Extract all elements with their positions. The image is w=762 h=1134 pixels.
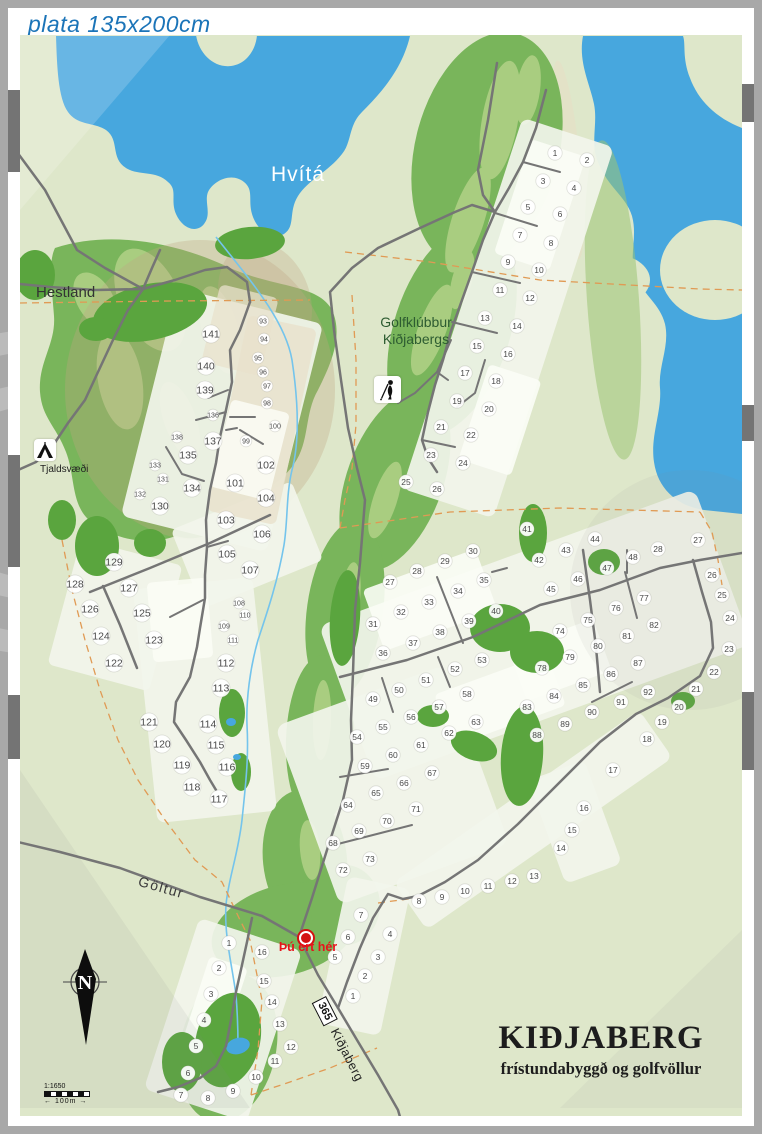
svg-text:20: 20	[484, 404, 494, 414]
svg-text:37: 37	[408, 638, 418, 648]
svg-text:136: 136	[207, 412, 219, 419]
plot-marker-1: 1	[222, 936, 236, 950]
svg-text:126: 126	[81, 604, 99, 616]
svg-text:16: 16	[579, 803, 589, 813]
plot-marker-4: 4	[197, 1013, 211, 1027]
plot-marker-8: 8	[544, 236, 558, 250]
svg-text:131: 131	[157, 476, 169, 483]
svg-text:78: 78	[537, 663, 547, 673]
plot-marker-11: 11	[268, 1054, 282, 1068]
svg-text:53: 53	[477, 655, 487, 665]
plot-marker-1: 1	[346, 989, 360, 1003]
plot-marker-1: 1	[548, 146, 562, 160]
plot-marker-134: 134	[183, 479, 201, 497]
svg-text:64: 64	[343, 800, 353, 810]
plot-marker-78: 78	[535, 661, 549, 675]
svg-text:112: 112	[218, 658, 235, 670]
scale-distance-value: 100m	[55, 1098, 77, 1105]
plot-marker-11: 11	[493, 283, 507, 297]
svg-text:82: 82	[649, 620, 659, 630]
svg-text:11: 11	[271, 1056, 280, 1066]
svg-text:1: 1	[227, 938, 232, 948]
plot-marker-52: 52	[448, 662, 462, 676]
svg-text:99: 99	[242, 438, 250, 445]
svg-text:76: 76	[611, 603, 621, 613]
map-canvas: 1234567891011121314151617181920212223242…	[20, 35, 742, 1116]
plot-marker-72: 72	[336, 863, 350, 877]
plot-marker-21: 21	[689, 682, 703, 696]
svg-text:80: 80	[593, 641, 603, 651]
svg-text:133: 133	[149, 462, 161, 469]
plot-marker-27: 27	[383, 575, 397, 589]
svg-text:28: 28	[412, 566, 422, 576]
plot-marker-17: 17	[606, 763, 620, 777]
svg-text:88: 88	[532, 730, 542, 740]
svg-text:124: 124	[92, 631, 110, 643]
svg-text:74: 74	[555, 626, 565, 636]
plot-marker-39: 39	[462, 614, 476, 628]
svg-text:123: 123	[145, 635, 163, 647]
svg-text:102: 102	[257, 460, 275, 472]
plot-marker-89: 89	[558, 717, 572, 731]
plot-marker-122: 122	[105, 654, 123, 672]
golf-club-label-line1: Golfklúbbur	[348, 314, 484, 331]
river-label: Hvítá	[271, 163, 325, 187]
svg-text:23: 23	[426, 450, 436, 460]
svg-text:4: 4	[388, 929, 393, 939]
svg-text:66: 66	[399, 778, 409, 788]
svg-text:10: 10	[460, 886, 470, 896]
plot-marker-112: 112	[217, 654, 235, 672]
plot-marker-6: 6	[553, 207, 567, 221]
svg-text:49: 49	[368, 694, 378, 704]
svg-text:7: 7	[518, 230, 523, 240]
golf-club-label-line2: Kiðjabergs	[348, 331, 484, 348]
edge-tab-left-middle	[8, 455, 20, 567]
plot-marker-11: 11	[481, 879, 495, 893]
plot-marker-24: 24	[723, 611, 737, 625]
svg-text:108: 108	[233, 600, 245, 607]
plot-marker-135: 135	[179, 446, 197, 464]
svg-text:4: 4	[572, 183, 577, 193]
svg-text:119: 119	[174, 760, 191, 772]
plot-marker-15: 15	[257, 974, 271, 988]
plot-marker-7: 7	[174, 1088, 188, 1102]
svg-text:17: 17	[608, 765, 618, 775]
svg-text:10: 10	[534, 265, 544, 275]
edge-tab-right-middle	[742, 405, 754, 441]
plot-marker-10: 10	[249, 1070, 263, 1084]
compass-rose: N	[57, 927, 113, 1057]
svg-text:122: 122	[105, 658, 123, 670]
svg-text:6: 6	[558, 209, 563, 219]
plot-marker-84: 84	[547, 689, 561, 703]
svg-text:45: 45	[546, 584, 556, 594]
scale-checker-bar	[44, 1091, 90, 1097]
svg-text:40: 40	[491, 606, 501, 616]
plot-marker-60: 60	[386, 748, 400, 762]
svg-text:121: 121	[140, 717, 158, 729]
plot-marker-13: 13	[527, 869, 541, 883]
plot-marker-98: 98	[261, 397, 273, 409]
plot-marker-30: 30	[466, 544, 480, 558]
plot-marker-139: 139	[196, 381, 214, 399]
svg-text:132: 132	[134, 491, 146, 498]
plot-marker-8: 8	[201, 1091, 215, 1105]
svg-text:63: 63	[471, 717, 481, 727]
scale-left-arrow: ←	[44, 1098, 52, 1105]
golf-club-label: Golfklúbbur Kiðjabergs	[348, 314, 484, 348]
svg-text:44: 44	[590, 534, 600, 544]
svg-text:21: 21	[691, 684, 701, 694]
svg-text:137: 137	[204, 436, 222, 448]
svg-text:23: 23	[724, 644, 734, 654]
plot-marker-87: 87	[631, 656, 645, 670]
svg-text:7: 7	[179, 1090, 184, 1100]
plot-marker-76: 76	[609, 601, 623, 615]
plot-marker-24: 24	[456, 456, 470, 470]
plot-marker-15: 15	[565, 823, 579, 837]
plot-marker-9: 9	[435, 890, 449, 904]
svg-text:36: 36	[378, 648, 388, 658]
svg-text:57: 57	[434, 702, 444, 712]
plot-marker-73: 73	[363, 852, 377, 866]
plot-marker-130: 130	[151, 497, 169, 515]
plot-marker-33: 33	[422, 595, 436, 609]
plot-marker-101: 101	[226, 474, 244, 492]
svg-text:75: 75	[583, 615, 593, 625]
svg-text:96: 96	[259, 369, 267, 376]
plot-marker-47: 47	[600, 561, 614, 575]
plot-marker-125: 125	[133, 604, 151, 622]
plot-marker-43: 43	[559, 543, 573, 557]
svg-text:20: 20	[674, 702, 684, 712]
svg-text:60: 60	[388, 750, 398, 760]
plot-marker-3: 3	[204, 987, 218, 1001]
svg-text:120: 120	[153, 739, 171, 751]
plot-marker-104: 104	[257, 489, 275, 507]
plot-marker-123: 123	[145, 631, 163, 649]
plot-marker-127: 127	[120, 579, 138, 597]
plot-marker-114: 114	[199, 715, 217, 733]
plot-marker-124: 124	[92, 627, 110, 645]
svg-text:10: 10	[251, 1072, 261, 1082]
svg-text:105: 105	[218, 549, 236, 561]
svg-text:15: 15	[259, 976, 269, 986]
edge-tab-left-top	[8, 90, 20, 172]
svg-text:118: 118	[184, 782, 201, 794]
plot-marker-4: 4	[567, 181, 581, 195]
plot-marker-46: 46	[571, 572, 585, 586]
plot-marker-41: 41	[520, 522, 534, 536]
svg-text:31: 31	[368, 619, 378, 629]
plot-marker-26: 26	[705, 568, 719, 582]
plot-marker-14: 14	[554, 841, 568, 855]
svg-text:54: 54	[352, 732, 362, 742]
plot-marker-79: 79	[563, 650, 577, 664]
plot-marker-42: 42	[532, 553, 546, 567]
svg-text:68: 68	[328, 838, 338, 848]
plot-marker-32: 32	[394, 605, 408, 619]
map-subtitle: frístundabyggð og golfvöllur	[456, 1059, 742, 1079]
plot-marker-65: 65	[369, 786, 383, 800]
plot-marker-23: 23	[722, 642, 736, 656]
svg-text:115: 115	[208, 740, 225, 752]
svg-text:42: 42	[534, 555, 544, 565]
svg-text:59: 59	[360, 761, 370, 771]
plot-marker-92: 92	[641, 685, 655, 699]
plot-marker-10: 10	[532, 263, 546, 277]
plot-marker-27: 27	[691, 533, 705, 547]
svg-text:65: 65	[371, 788, 381, 798]
svg-text:135: 135	[179, 450, 197, 462]
svg-text:6: 6	[346, 932, 351, 942]
plot-marker-69: 69	[352, 824, 366, 838]
plot-marker-22: 22	[464, 428, 478, 442]
svg-text:127: 127	[120, 583, 138, 595]
svg-text:129: 129	[105, 557, 123, 569]
svg-text:19: 19	[452, 396, 462, 406]
plot-marker-82: 82	[647, 618, 661, 632]
svg-text:3: 3	[209, 989, 214, 999]
svg-text:73: 73	[365, 854, 375, 864]
plot-marker-95: 95	[252, 352, 264, 364]
svg-text:41: 41	[522, 524, 532, 534]
plot-marker-20: 20	[672, 700, 686, 714]
plot-marker-116: 116	[218, 758, 236, 776]
plot-marker-63: 63	[469, 715, 483, 729]
edge-tab-right-bottom	[742, 692, 754, 770]
svg-text:21: 21	[436, 422, 446, 432]
svg-text:2: 2	[585, 155, 590, 165]
plot-marker-18: 18	[640, 732, 654, 746]
svg-text:27: 27	[693, 535, 703, 545]
svg-text:3: 3	[541, 176, 546, 186]
plot-marker-5: 5	[521, 200, 535, 214]
edge-tab-left-bottom	[8, 695, 20, 759]
svg-text:28: 28	[653, 544, 663, 554]
plot-marker-19: 19	[450, 394, 464, 408]
plot-marker-136: 136	[207, 409, 219, 421]
plot-marker-7: 7	[513, 228, 527, 242]
map-plate: plata 135x200cm 123456789101112131415161…	[8, 8, 754, 1126]
svg-text:13: 13	[275, 1019, 285, 1029]
plot-marker-3: 3	[536, 174, 550, 188]
you-are-here-label: Þú ert hér	[270, 940, 346, 954]
plot-marker-96: 96	[257, 366, 269, 378]
plot-marker-13: 13	[273, 1017, 287, 1031]
plot-marker-59: 59	[358, 759, 372, 773]
plot-marker-36: 36	[376, 646, 390, 660]
plot-marker-34: 34	[451, 584, 465, 598]
plot-marker-16: 16	[501, 347, 515, 361]
plot-marker-90: 90	[585, 705, 599, 719]
plot-marker-113: 113	[212, 679, 230, 697]
svg-text:15: 15	[567, 825, 577, 835]
svg-text:5: 5	[526, 202, 531, 212]
svg-text:56: 56	[406, 712, 416, 722]
svg-text:22: 22	[466, 430, 476, 440]
plot-marker-93: 93	[257, 315, 269, 327]
plot-marker-133: 133	[149, 459, 161, 471]
svg-text:106: 106	[253, 529, 271, 541]
svg-text:72: 72	[338, 865, 348, 875]
svg-text:18: 18	[642, 734, 652, 744]
svg-text:24: 24	[725, 613, 735, 623]
plot-marker-64: 64	[341, 798, 355, 812]
plot-marker-19: 19	[655, 715, 669, 729]
svg-text:83: 83	[522, 702, 532, 712]
scale-bar: 1:1650 ← 100m →	[44, 1083, 90, 1105]
edge-tab-right-top	[742, 84, 754, 122]
svg-text:87: 87	[633, 658, 643, 668]
plot-marker-18: 18	[489, 374, 503, 388]
plot-marker-12: 12	[505, 874, 519, 888]
svg-text:113: 113	[213, 683, 230, 695]
svg-text:91: 91	[616, 697, 626, 707]
scale-cell	[84, 1092, 90, 1096]
svg-text:117: 117	[211, 794, 228, 806]
plot-marker-58: 58	[460, 687, 474, 701]
svg-text:61: 61	[416, 740, 426, 750]
svg-text:95: 95	[254, 355, 262, 362]
svg-text:109: 109	[218, 623, 230, 630]
plot-marker-121: 121	[140, 713, 158, 731]
plot-marker-16: 16	[255, 945, 269, 959]
svg-text:7: 7	[359, 910, 364, 920]
plot-marker-103: 103	[217, 511, 235, 529]
svg-text:70: 70	[382, 816, 392, 826]
svg-text:14: 14	[267, 997, 277, 1007]
svg-text:141: 141	[202, 329, 220, 341]
svg-text:9: 9	[231, 1086, 236, 1096]
map-title-block: KIÐJABERG frístundabyggð og golfvöllur	[456, 1020, 742, 1079]
svg-text:24: 24	[458, 458, 468, 468]
plot-marker-16: 16	[577, 801, 591, 815]
plot-marker-117: 117	[210, 790, 228, 808]
svg-text:11: 11	[496, 285, 505, 295]
plot-marker-20: 20	[482, 402, 496, 416]
plot-marker-67: 67	[425, 766, 439, 780]
plot-marker-107: 107	[241, 561, 259, 579]
svg-text:38: 38	[435, 627, 445, 637]
svg-text:55: 55	[378, 722, 388, 732]
map-artwork: 1234567891011121314151617181920212223242…	[20, 35, 742, 1116]
svg-text:25: 25	[401, 477, 411, 487]
plot-marker-75: 75	[581, 613, 595, 627]
svg-text:77: 77	[639, 593, 649, 603]
svg-text:51: 51	[421, 675, 431, 685]
plot-marker-68: 68	[326, 836, 340, 850]
plot-marker-3: 3	[371, 950, 385, 964]
plot-marker-119: 119	[173, 756, 191, 774]
plot-marker-14: 14	[510, 319, 524, 333]
svg-text:25: 25	[717, 590, 727, 600]
plot-marker-115: 115	[207, 736, 225, 754]
svg-text:33: 33	[424, 597, 434, 607]
plot-marker-37: 37	[406, 636, 420, 650]
svg-text:134: 134	[183, 483, 201, 495]
plot-marker-106: 106	[253, 525, 271, 543]
svg-text:114: 114	[200, 719, 217, 731]
plate-size-label: plata 135x200cm	[28, 11, 211, 38]
plot-marker-97: 97	[261, 380, 273, 392]
svg-text:1: 1	[553, 148, 558, 158]
svg-text:140: 140	[197, 361, 215, 373]
plot-marker-70: 70	[380, 814, 394, 828]
plot-marker-53: 53	[475, 653, 489, 667]
svg-text:3: 3	[376, 952, 381, 962]
plot-marker-81: 81	[620, 629, 634, 643]
plot-marker-85: 85	[576, 678, 590, 692]
plot-marker-54: 54	[350, 730, 364, 744]
plot-marker-128: 128	[66, 575, 84, 593]
plot-marker-83: 83	[520, 700, 534, 714]
plot-marker-61: 61	[414, 738, 428, 752]
svg-text:94: 94	[260, 336, 268, 343]
golfer-icon	[374, 376, 401, 403]
plot-marker-2: 2	[358, 969, 372, 983]
plot-marker-49: 49	[366, 692, 380, 706]
plot-marker-141: 141	[202, 325, 220, 343]
plot-marker-25: 25	[399, 475, 413, 489]
svg-text:2: 2	[217, 963, 222, 973]
plot-marker-48: 48	[626, 550, 640, 564]
compass-north-letter: N	[78, 972, 93, 994]
campsite-label: Tjaldsvæði	[40, 464, 88, 475]
plot-marker-111: 111	[227, 634, 239, 646]
svg-text:12: 12	[525, 293, 535, 303]
svg-text:8: 8	[549, 238, 554, 248]
plot-marker-17: 17	[458, 366, 472, 380]
plot-marker-6: 6	[181, 1066, 195, 1080]
plot-marker-99: 99	[240, 435, 252, 447]
plot-marker-129: 129	[105, 553, 123, 571]
svg-text:2: 2	[363, 971, 368, 981]
svg-text:5: 5	[194, 1041, 199, 1051]
campsite-tent-icon	[34, 439, 56, 461]
svg-text:100: 100	[269, 423, 281, 430]
plot-marker-45: 45	[544, 582, 558, 596]
plot-marker-132: 132	[134, 488, 146, 500]
svg-text:27: 27	[385, 577, 395, 587]
page: { "plate": { "label": "plata 135x200cm" …	[0, 0, 762, 1134]
plot-marker-62: 62	[442, 726, 456, 740]
plot-marker-4: 4	[383, 927, 397, 941]
svg-text:43: 43	[561, 545, 571, 555]
plot-marker-140: 140	[197, 357, 215, 375]
plot-marker-118: 118	[183, 778, 201, 796]
svg-text:125: 125	[133, 608, 151, 620]
plot-marker-102: 102	[257, 456, 275, 474]
svg-text:32: 32	[396, 607, 406, 617]
svg-text:89: 89	[560, 719, 570, 729]
svg-text:30: 30	[468, 546, 478, 556]
scale-right-arrow: →	[79, 1098, 87, 1105]
svg-text:97: 97	[263, 383, 271, 390]
plot-marker-9: 9	[226, 1084, 240, 1098]
plot-marker-77: 77	[637, 591, 651, 605]
plot-marker-126: 126	[81, 600, 99, 618]
svg-text:71: 71	[411, 804, 421, 814]
svg-text:6: 6	[186, 1068, 191, 1078]
plot-marker-40: 40	[489, 604, 503, 618]
svg-text:16: 16	[503, 349, 513, 359]
svg-text:46: 46	[573, 574, 583, 584]
plot-marker-110: 110	[239, 609, 251, 621]
plot-marker-137: 137	[204, 432, 222, 450]
plot-marker-120: 120	[153, 735, 171, 753]
